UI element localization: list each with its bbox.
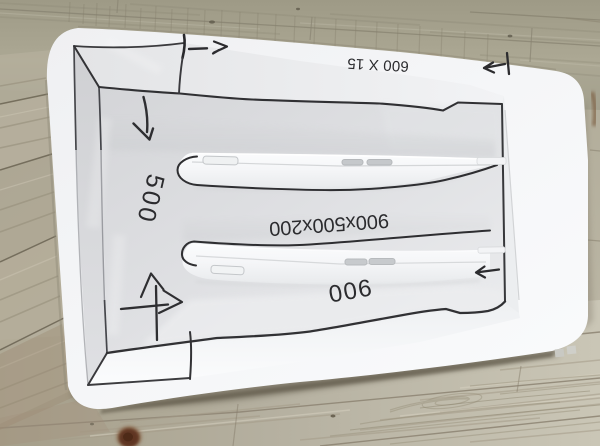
svg-text:600 X 15: 600 X 15 xyxy=(347,54,409,74)
